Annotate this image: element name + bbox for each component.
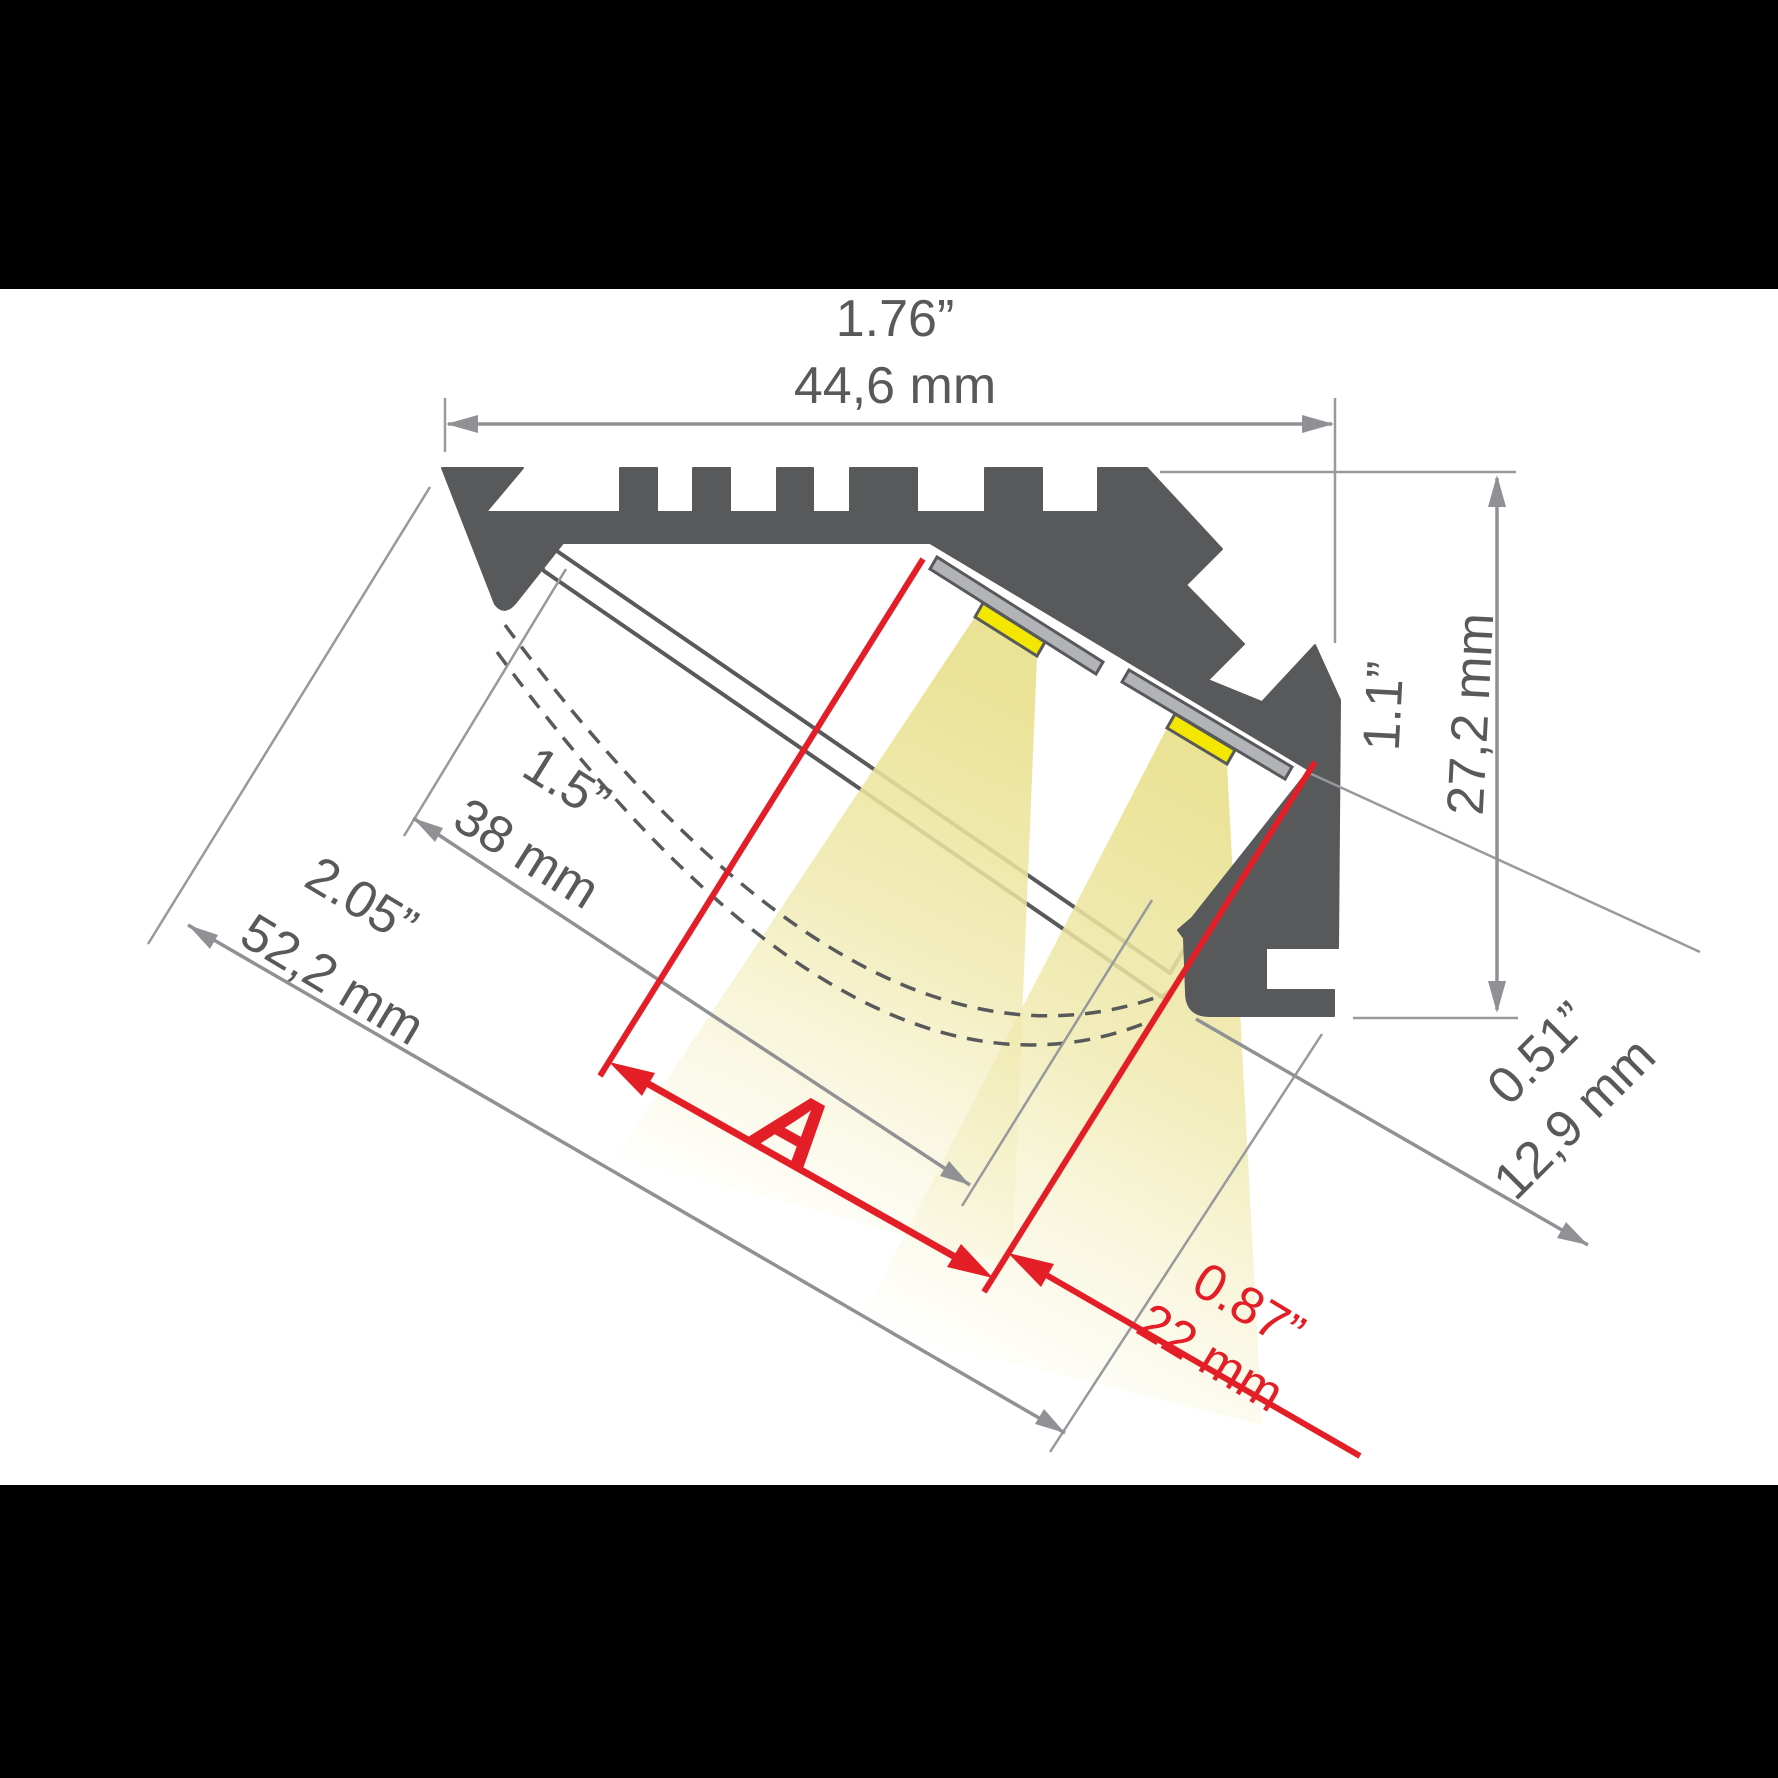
- profile-dimension-drawing: 1.76” 44,6 mm 1.1” 27,2 mm 1.5” 38 mm 2.…: [0, 0, 1778, 1778]
- dim-right-inches: 1.1”: [1353, 660, 1416, 753]
- arrow-top-left: [446, 415, 478, 433]
- arrow-right-down: [1488, 981, 1506, 1013]
- dim-top-mm-group: 44,6 mm: [794, 357, 996, 415]
- arrow-top-right: [1302, 415, 1334, 433]
- arrow-outer-right: [1035, 1409, 1065, 1433]
- dim-top-mm: 44,6 mm: [794, 357, 996, 415]
- ext-foot-upper: [1307, 772, 1700, 952]
- ext-outer-left: [148, 487, 430, 944]
- dim-top-inches-group: 1.76”: [836, 290, 955, 348]
- dim-inner-inches-group: 1.5”: [513, 736, 620, 833]
- arrow-inner-left: [413, 818, 443, 842]
- arrow-a-left: [609, 1062, 655, 1096]
- dim-right-mm-group: 27,2 mm: [1437, 612, 1506, 817]
- dim-right-inches-group: 1.1”: [1353, 660, 1416, 753]
- arrow-foot: [1557, 1222, 1588, 1245]
- arrow-right-up: [1488, 475, 1506, 507]
- diagram-stage: 1.76” 44,6 mm 1.1” 27,2 mm 1.5” 38 mm 2.…: [0, 0, 1778, 1778]
- dim-top-inches: 1.76”: [836, 290, 955, 348]
- dim-right-mm: 27,2 mm: [1437, 612, 1506, 817]
- arrow-outer-left: [188, 925, 218, 949]
- dim-inner-inches: 1.5”: [513, 736, 620, 833]
